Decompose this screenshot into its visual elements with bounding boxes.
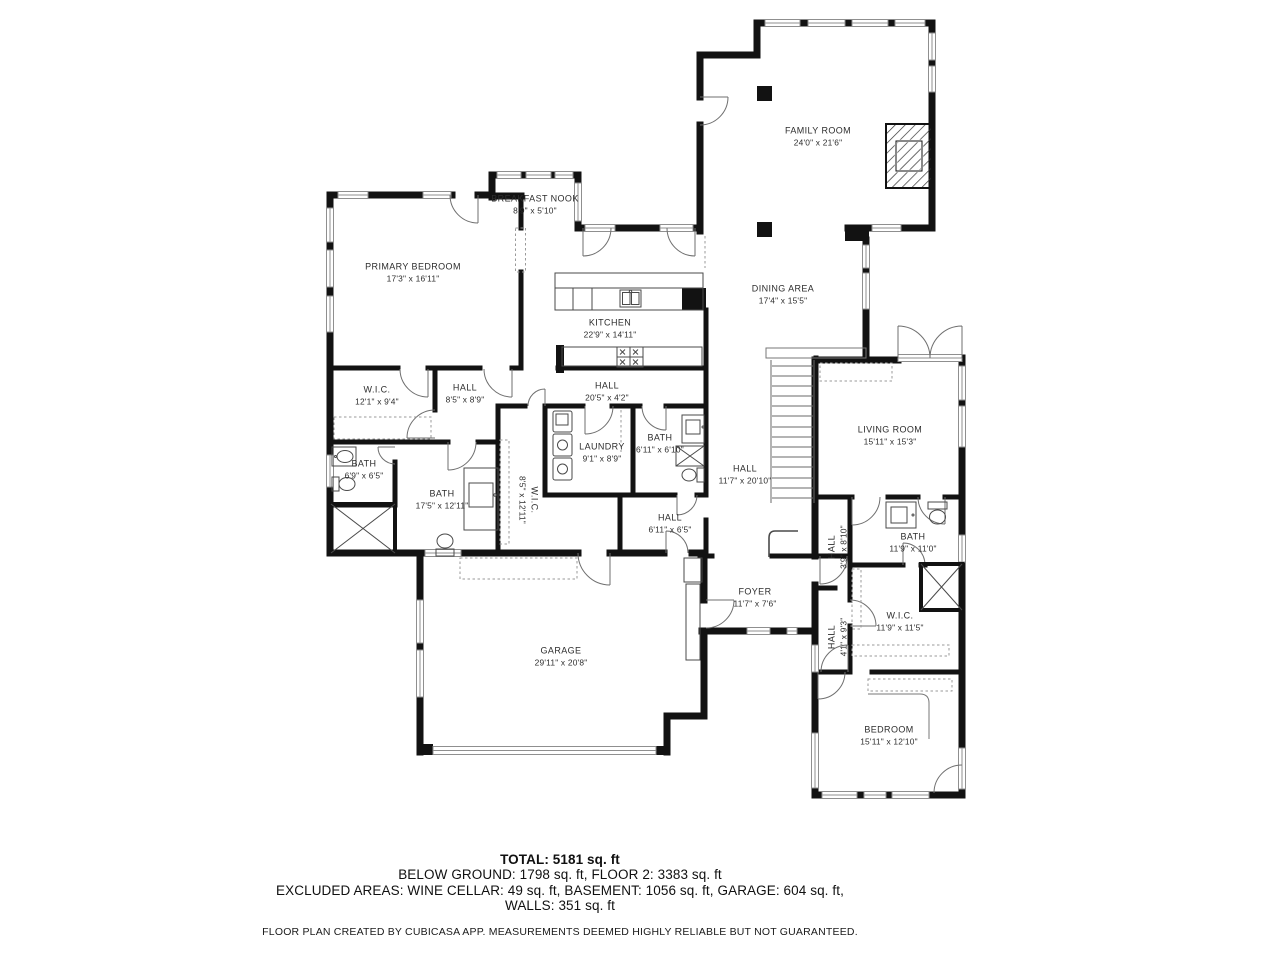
fireplace-icon xyxy=(886,124,932,188)
summary-line-3: EXCLUDED AREAS: WINE CELLAR: 49 sq. ft, … xyxy=(0,883,1120,898)
floor-plan-drawing xyxy=(0,0,1280,960)
kitchen-counter-end-block xyxy=(682,288,706,310)
shower-right-icon xyxy=(921,564,962,610)
windows xyxy=(327,20,966,799)
washer-dryer-icon xyxy=(553,411,572,480)
summary-total: TOTAL: 5181 sq. ft xyxy=(0,852,1120,867)
bath-center-fixtures-icon xyxy=(676,415,704,482)
kitchen-counter-stove-icon xyxy=(562,347,702,367)
fixtures xyxy=(332,273,947,739)
summary-footer: TOTAL: 5181 sq. ft BELOW GROUND: 1798 sq… xyxy=(0,852,1120,938)
bedroom-closet-line xyxy=(868,694,929,739)
bath-small-left-fixtures-icon xyxy=(332,447,356,491)
door-arcs xyxy=(378,97,962,793)
summary-line-2: BELOW GROUND: 1798 sq. ft, FLOOR 2: 3383… xyxy=(0,867,1120,882)
kitchen-island-icon xyxy=(555,273,703,310)
bath-right-fixtures-icon xyxy=(886,502,947,528)
exterior-walls xyxy=(330,23,962,795)
disclaimer-text: FLOOR PLAN CREATED BY CUBICASA APP. MEAS… xyxy=(0,926,1120,938)
floor-plan-page: FAMILY ROOM24'0" x 21'6"BREAKFAST NOOK8'… xyxy=(0,0,1280,960)
dashed-storage xyxy=(334,228,952,691)
shower-left-icon xyxy=(331,504,395,553)
primary-bath-fixtures-icon xyxy=(436,468,498,556)
garage-door xyxy=(433,747,656,755)
summary-line-4: WALLS: 351 sq. ft xyxy=(0,898,1120,913)
garage-cabinets-icon xyxy=(684,558,702,660)
columns-and-solids xyxy=(420,86,869,755)
